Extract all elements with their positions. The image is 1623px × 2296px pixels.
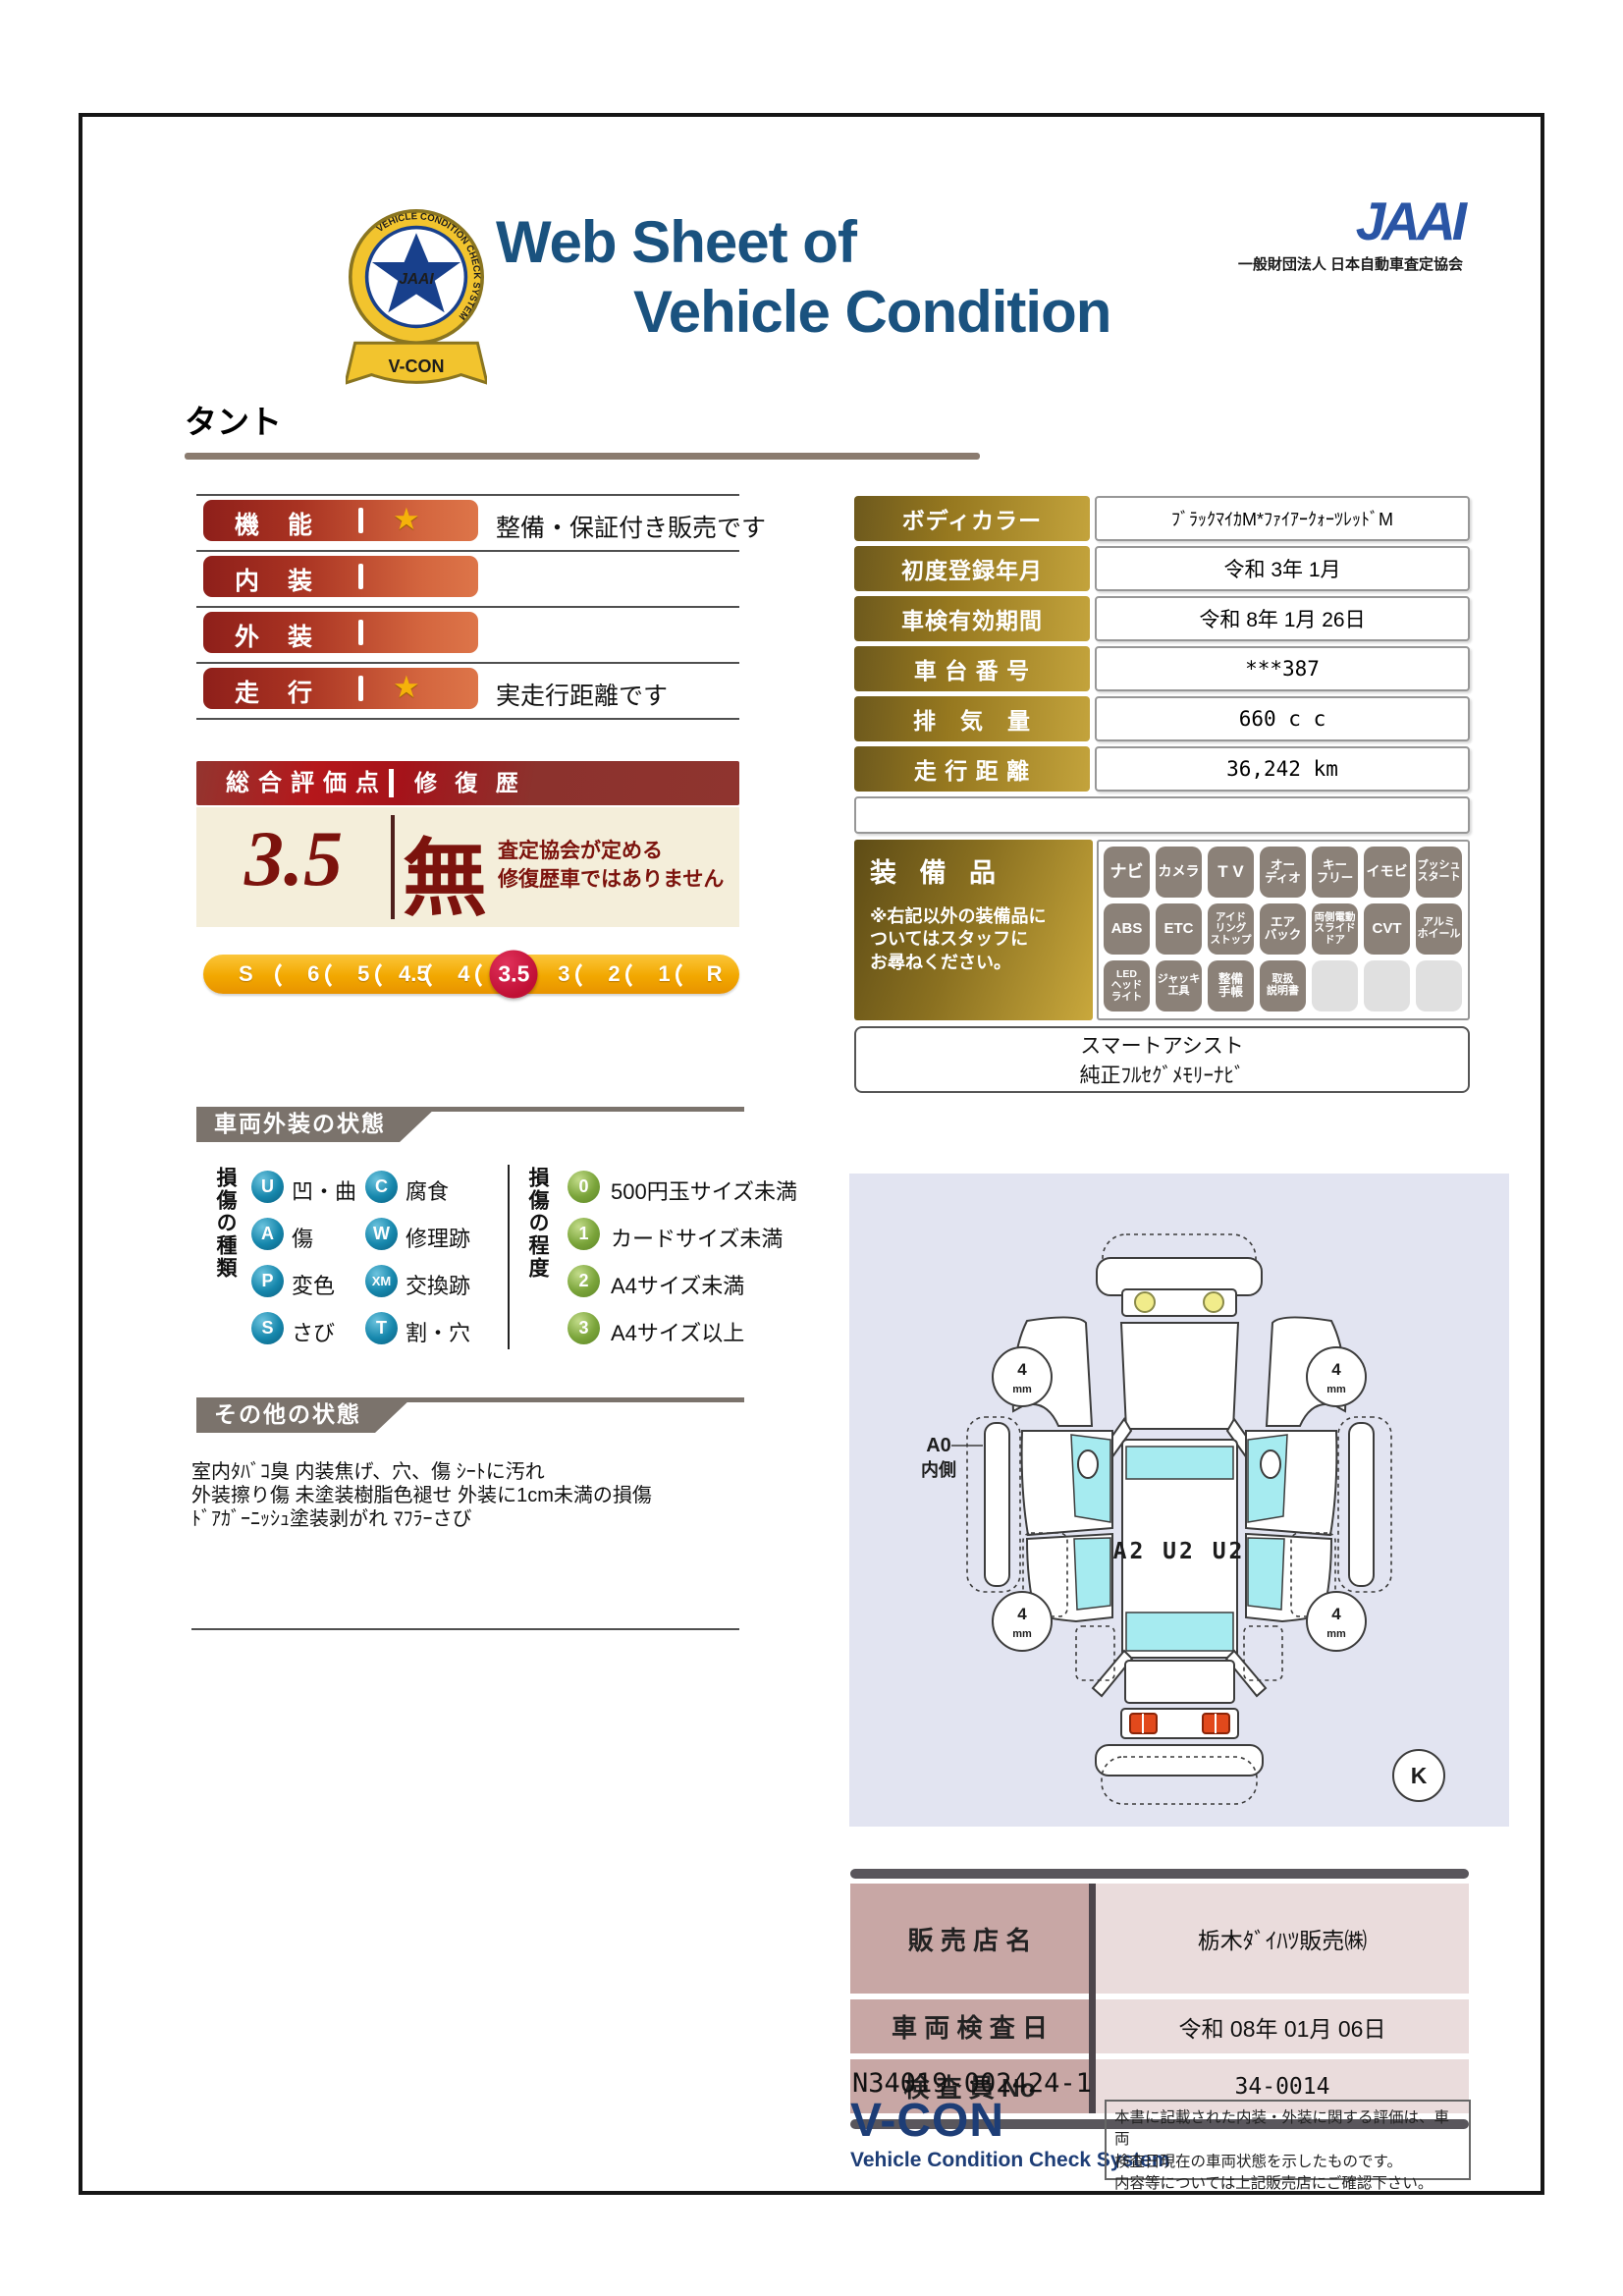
headlight-icon bbox=[1135, 1292, 1155, 1312]
info-label-first-registration: 初度登録年月 bbox=[854, 546, 1090, 591]
equipment-badge: オー ディオ bbox=[1260, 847, 1306, 898]
inner-sill-label2: 内側 bbox=[921, 1459, 956, 1480]
repair-history-note: 査定協会が定める 修復歴車ではありません bbox=[498, 837, 724, 894]
rating-note: 実走行距離です bbox=[496, 677, 668, 712]
equipment-badge-empty bbox=[1364, 960, 1410, 1011]
type-label: 傷 bbox=[292, 1222, 313, 1253]
rating-bar-interior: 内 装 bbox=[203, 556, 478, 597]
type-label: 交換跡 bbox=[406, 1269, 470, 1300]
equipment-title: 装 備 品 bbox=[870, 851, 1093, 890]
overall-header: 総合評価点 修 復 歴 bbox=[196, 761, 739, 805]
degree-code: 3 bbox=[578, 1318, 588, 1339]
equipment-badge: イモビ bbox=[1364, 847, 1410, 898]
rating-tick bbox=[358, 508, 363, 533]
scale-seg-active: 3.5 bbox=[489, 955, 539, 994]
equipment-badge: 整備 手帳 bbox=[1208, 960, 1254, 1011]
disclaimer-line: 内容等については上記販売店にご確認下さい。 bbox=[1114, 2173, 1461, 2195]
scale-value: 1 bbox=[658, 961, 670, 987]
extra-equipment-line1: スマートアシスト bbox=[856, 1032, 1468, 1062]
equipment-badge: キー フリー bbox=[1312, 847, 1358, 898]
row-separator bbox=[196, 494, 739, 496]
degree-header: 損傷の程度 bbox=[522, 1167, 552, 1280]
type-label: さび bbox=[292, 1316, 335, 1347]
type-code: A bbox=[261, 1224, 274, 1244]
type-label: 腐食 bbox=[406, 1175, 449, 1206]
degree-code: 2 bbox=[578, 1271, 588, 1291]
info-value-chassis-no: ***387 bbox=[1095, 646, 1470, 691]
info-value-first-registration: 令和 3年 1月 bbox=[1095, 546, 1470, 591]
rating-bar-function: 機 能 ★ bbox=[203, 500, 478, 541]
info-label-chassis-no: 車 台 番 号 bbox=[854, 646, 1090, 691]
rating-label: 走 行 bbox=[235, 674, 314, 709]
evaluation-scale: S 6 5 4.5 4 3.5 3 2 1 R bbox=[203, 955, 739, 994]
scale-value: 3 bbox=[558, 961, 569, 987]
degree-label: カードサイズ未満 bbox=[611, 1222, 783, 1253]
type-label: 変色 bbox=[292, 1269, 335, 1300]
damage-degree-badge: 3 bbox=[568, 1312, 600, 1344]
type-code: P bbox=[261, 1271, 273, 1291]
jaai-wordmark: JAAI bbox=[1168, 194, 1463, 248]
other-condition-line: ﾄﾞｱｶﾞｰﾆｯｼｭ塗装剥がれ ﾏﾌﾗｰさび bbox=[191, 1503, 472, 1531]
row-separator bbox=[196, 662, 739, 664]
corner-mark: K bbox=[1411, 1763, 1428, 1788]
scale-value: 4 bbox=[458, 961, 469, 987]
car-damage-diagram: A0 内側 4 mm 4 mm 4 mm 4 mm A2 U2 U2 K bbox=[849, 1174, 1509, 1827]
damage-degree-badge: 0 bbox=[568, 1171, 600, 1203]
empty-info-box bbox=[854, 796, 1470, 834]
vcon-logo: V-CON bbox=[850, 2094, 1004, 2148]
info-label-mileage: 走 行 距 離 bbox=[854, 746, 1090, 792]
type-code: U bbox=[261, 1176, 274, 1197]
divider bbox=[185, 453, 980, 460]
damage-type-badge: C bbox=[365, 1171, 398, 1203]
equipment-badge: 取扱 説明書 bbox=[1260, 960, 1306, 1011]
degree-code: 1 bbox=[578, 1224, 588, 1244]
equipment-badge-empty bbox=[1416, 960, 1462, 1011]
tire-depth-unit: mm bbox=[1012, 1628, 1032, 1640]
type-code: W bbox=[373, 1224, 390, 1244]
table-border-bar bbox=[850, 1869, 1469, 1879]
equipment-note: ※右記以外の装備品に ついてはスタッフに お尋ねください。 bbox=[870, 905, 1093, 974]
sheet-title-line2: Vehicle Condition bbox=[633, 278, 1110, 346]
equipment-badge: 両側電動 スライド ドア bbox=[1312, 903, 1358, 955]
type-code: C bbox=[375, 1176, 388, 1197]
info-label-body-color: ボディカラー bbox=[854, 496, 1090, 541]
row-separator bbox=[196, 606, 739, 608]
equipment-badge: LED ヘッド ライト bbox=[1104, 960, 1150, 1011]
dealer-label-shop: 販 売 店 名 bbox=[850, 1884, 1089, 1994]
type-code: XM bbox=[372, 1274, 392, 1288]
damage-type-badge: XM bbox=[365, 1265, 398, 1297]
tire-depth-value: 4 bbox=[1017, 1605, 1027, 1623]
section-title-exterior: 車両外装の状態 bbox=[196, 1107, 437, 1142]
vcon-emblem-logo: VEHICLE CONDITION CHECK SYSTEM JAAI V-CO… bbox=[346, 206, 487, 385]
rating-label: 内 装 bbox=[235, 562, 314, 597]
extra-equipment-box: スマートアシスト 純正ﾌﾙｾｸﾞﾒﾓﾘｰﾅﾋﾞ bbox=[854, 1026, 1470, 1093]
dealer-value-shop: 栃木ﾀﾞｲﾊﾂ販売㈱ bbox=[1096, 1884, 1469, 1994]
equipment-panel-label: 装 備 品 ※右記以外の装備品に ついてはスタッフに お尋ねください。 bbox=[854, 840, 1093, 1020]
disclaimer-line: 本書に記載された内装・外装に関する評価は、車両 bbox=[1114, 2107, 1461, 2152]
tire-depth-value: 4 bbox=[1331, 1360, 1341, 1379]
tire-depth-value: 4 bbox=[1017, 1360, 1027, 1379]
equipment-badge-empty bbox=[1312, 960, 1358, 1011]
equipment-badge: カメラ bbox=[1156, 847, 1202, 898]
emblem-word: JAAI bbox=[399, 271, 434, 288]
rating-note: 整備・保証付き販売です bbox=[496, 509, 766, 544]
repair-history-mark: 無 bbox=[403, 809, 487, 932]
header-tick bbox=[389, 769, 394, 797]
star-icon: ★ bbox=[393, 670, 420, 705]
damage-type-badge: S bbox=[251, 1312, 284, 1344]
damage-type-badge: W bbox=[365, 1218, 398, 1250]
sheet-border-frame bbox=[79, 113, 1544, 2195]
overall-score: 3.5 bbox=[196, 815, 391, 904]
damage-degree-badge: 1 bbox=[568, 1218, 600, 1250]
disclaimer-box: 本書に記載された内装・外装に関する評価は、車両 検査日現在の車両状態を示したもの… bbox=[1105, 2100, 1471, 2180]
dealer-value-inspection-date: 令和 08年 01月 06日 bbox=[1096, 1999, 1469, 2053]
headlight-icon bbox=[1204, 1292, 1223, 1312]
tire-depth-unit: mm bbox=[1326, 1628, 1346, 1640]
equipment-badge: アイド リング ストップ bbox=[1208, 903, 1254, 955]
scale-value: 6 bbox=[307, 961, 319, 987]
scale-value: S bbox=[239, 961, 253, 987]
legend-divider bbox=[508, 1165, 510, 1349]
info-value-displacement: 660 c c bbox=[1095, 696, 1470, 741]
damage-degree-badge: 2 bbox=[568, 1265, 600, 1297]
section-title-other: その他の状態 bbox=[196, 1397, 412, 1433]
rating-tick bbox=[358, 676, 363, 701]
row-separator bbox=[196, 550, 739, 552]
org-name: 一般財団法人 日本自動車査定協会 bbox=[1109, 253, 1463, 274]
info-value-mileage: 36,242 km bbox=[1095, 746, 1470, 792]
overall-body: 3.5 無 査定協会が定める 修復歴車ではありません bbox=[196, 807, 739, 927]
damage-type-badge: T bbox=[365, 1312, 398, 1344]
overall-header-left: 総合評価点 bbox=[226, 761, 388, 805]
rating-bar-exterior: 外 装 bbox=[203, 612, 478, 653]
equipment-badge: ナビ bbox=[1104, 847, 1150, 898]
star-icon: ★ bbox=[393, 502, 420, 537]
info-value-body-color: ﾌﾞﾗｯｸﾏｲｶM*ﾌｧｲｱｰｸｫｰﾂﾚｯﾄﾞM bbox=[1095, 496, 1470, 541]
damage-type-badge: P bbox=[251, 1265, 284, 1297]
inner-sill-label: A0 bbox=[926, 1435, 951, 1456]
damage-type-badge: A bbox=[251, 1218, 284, 1250]
damage-type-badge: U bbox=[251, 1171, 284, 1203]
divider bbox=[391, 815, 395, 919]
dealer-label-inspection-date: 車 両 検 査 日 bbox=[850, 1999, 1089, 2053]
scale-value: 2 bbox=[608, 961, 620, 987]
equipment-badge: ABS bbox=[1104, 903, 1150, 955]
vehicle-condition-sheet: VEHICLE CONDITION CHECK SYSTEM JAAI V-CO… bbox=[0, 0, 1623, 2296]
extra-equipment-line2: 純正ﾌﾙｾｸﾞﾒﾓﾘｰﾅﾋﾞ bbox=[856, 1062, 1468, 1091]
rating-bar-mileage: 走 行 ★ bbox=[203, 668, 478, 709]
type-label: 修理跡 bbox=[406, 1222, 470, 1253]
info-label-inspection-valid: 車検有効期間 bbox=[854, 596, 1090, 641]
repair-note-line2: 修復歴車ではありません bbox=[498, 865, 724, 894]
sheet-title-line1: Web Sheet of bbox=[496, 208, 856, 276]
roof-damage-codes: A2 U2 U2 bbox=[1113, 1539, 1246, 1564]
equipment-badges: ナビ カメラ T V オー ディオ キー フリー イモビ プッシュ スタート A… bbox=[1097, 840, 1470, 1020]
info-label-displacement: 排 気 量 bbox=[854, 696, 1090, 741]
emblem-ribbon-text: V-CON bbox=[388, 356, 444, 376]
active-score-badge: 3.5 bbox=[490, 951, 538, 999]
degree-label: 500円玉サイズ未満 bbox=[611, 1175, 797, 1206]
row-separator bbox=[196, 718, 739, 720]
equipment-badge: アルミ ホイール bbox=[1416, 903, 1462, 955]
tire-depth-value: 4 bbox=[1331, 1605, 1341, 1623]
scale-seg: R bbox=[689, 955, 739, 994]
disclaimer-line: 検査日現在の車両状態を示したものです。 bbox=[1114, 2152, 1461, 2173]
equipment-badge: T V bbox=[1208, 847, 1254, 898]
rating-label: 機 能 bbox=[235, 506, 314, 541]
info-value-inspection-valid: 令和 8年 1月 26日 bbox=[1095, 596, 1470, 641]
scale-value: R bbox=[707, 961, 723, 987]
tire-depth-unit: mm bbox=[1326, 1384, 1346, 1395]
rating-tick bbox=[358, 564, 363, 589]
rating-label: 外 装 bbox=[235, 618, 314, 653]
equipment-badge: ETC bbox=[1156, 903, 1202, 955]
scale-value: 5 bbox=[357, 961, 369, 987]
section-bottom-line bbox=[191, 1628, 739, 1630]
rating-tick bbox=[358, 620, 363, 645]
tire-depth-unit: mm bbox=[1012, 1384, 1032, 1395]
equipment-badge: ジャッキ 工具 bbox=[1156, 960, 1202, 1011]
degree-code: 0 bbox=[578, 1176, 588, 1197]
type-code: S bbox=[261, 1318, 273, 1339]
equipment-badge: CVT bbox=[1364, 903, 1410, 955]
degree-label: A4サイズ未満 bbox=[611, 1269, 744, 1300]
type-header: 損傷の種類 bbox=[210, 1167, 240, 1280]
equipment-badge: プッシュ スタート bbox=[1416, 847, 1462, 898]
vehicle-name: タント bbox=[185, 396, 282, 443]
type-code: T bbox=[376, 1318, 387, 1339]
overall-header-right: 修 復 歴 bbox=[414, 761, 524, 805]
type-label: 凹・曲 bbox=[292, 1175, 356, 1206]
equipment-badge: エア バック bbox=[1260, 903, 1306, 955]
degree-label: A4サイズ以上 bbox=[611, 1316, 744, 1347]
repair-note-line1: 査定協会が定める bbox=[498, 837, 724, 865]
type-label: 割・穴 bbox=[406, 1316, 470, 1347]
